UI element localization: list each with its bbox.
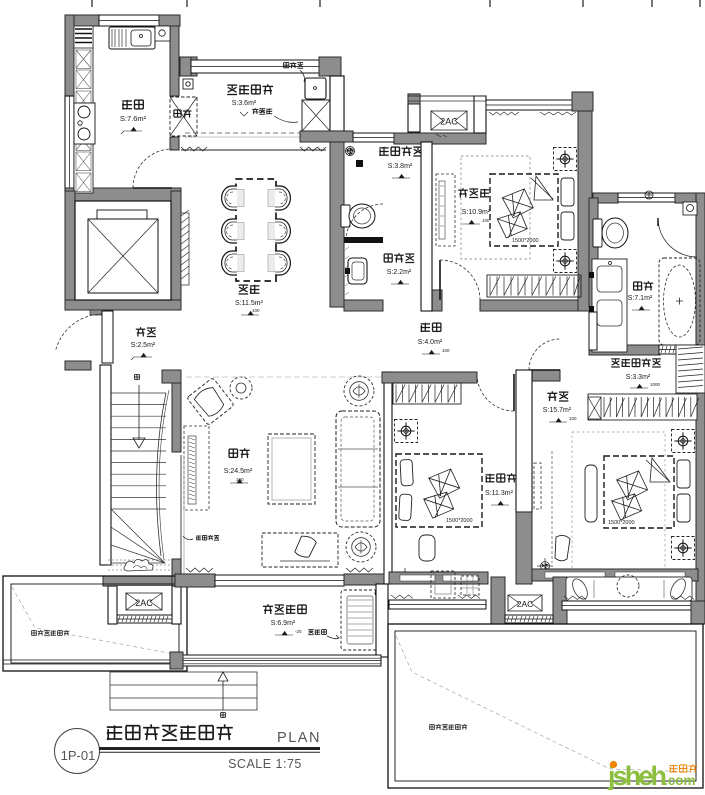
svg-text:S:11.3m²: S:11.3m² <box>485 490 514 497</box>
svg-text:100: 100 <box>252 308 260 313</box>
svg-text:.com: .com <box>664 773 696 788</box>
svg-text:S:3.6m²: S:3.6m² <box>232 100 257 107</box>
svg-text:S:4.0m²: S:4.0m² <box>418 339 443 346</box>
svg-text:S:2.5m²: S:2.5m² <box>131 342 156 349</box>
svg-text:S:2.2m²: S:2.2m² <box>387 269 412 276</box>
svg-text:1P-01: 1P-01 <box>61 748 96 763</box>
svg-text:2AC: 2AC <box>517 599 534 609</box>
svg-text:1000: 1000 <box>650 382 661 387</box>
svg-text:-20: -20 <box>295 629 302 634</box>
svg-text:SCALE 1:75: SCALE 1:75 <box>228 757 302 771</box>
svg-text:S:15.7m²: S:15.7m² <box>543 407 572 414</box>
svg-text:100: 100 <box>442 348 450 353</box>
svg-text:S:7.1m²: S:7.1m² <box>628 295 653 302</box>
svg-text:100: 100 <box>569 416 577 421</box>
svg-text:S:11.5m²: S:11.5m² <box>235 300 264 307</box>
svg-text:PLAN: PLAN <box>277 730 321 746</box>
svg-text:2AC: 2AC <box>135 598 153 608</box>
svg-text:1500*2000: 1500*2000 <box>512 238 539 244</box>
svg-text:100: 100 <box>236 477 244 482</box>
svg-text:100: 100 <box>482 218 490 223</box>
svg-text:S:24.5m²: S:24.5m² <box>224 468 253 475</box>
svg-text:S:6.9m²: S:6.9m² <box>271 620 296 627</box>
svg-text:S:7.6m²: S:7.6m² <box>120 114 147 123</box>
svg-text:S:10.9m²: S:10.9m² <box>462 209 491 216</box>
svg-text:2AC: 2AC <box>440 117 458 127</box>
svg-text:S:3.8m²: S:3.8m² <box>388 163 413 170</box>
svg-text:1500*2000: 1500*2000 <box>608 520 635 526</box>
svg-text:1500*2000: 1500*2000 <box>446 518 473 524</box>
svg-text:S:3.3m²: S:3.3m² <box>626 374 651 381</box>
